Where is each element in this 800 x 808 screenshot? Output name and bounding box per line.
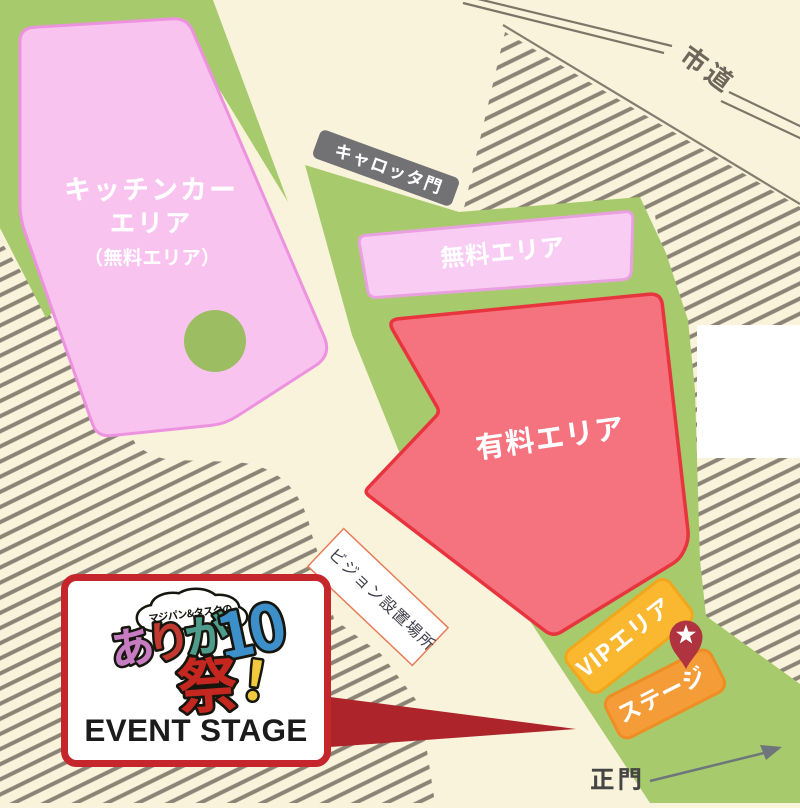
svg-text:EVENT STAGE: EVENT STAGE bbox=[84, 712, 307, 748]
